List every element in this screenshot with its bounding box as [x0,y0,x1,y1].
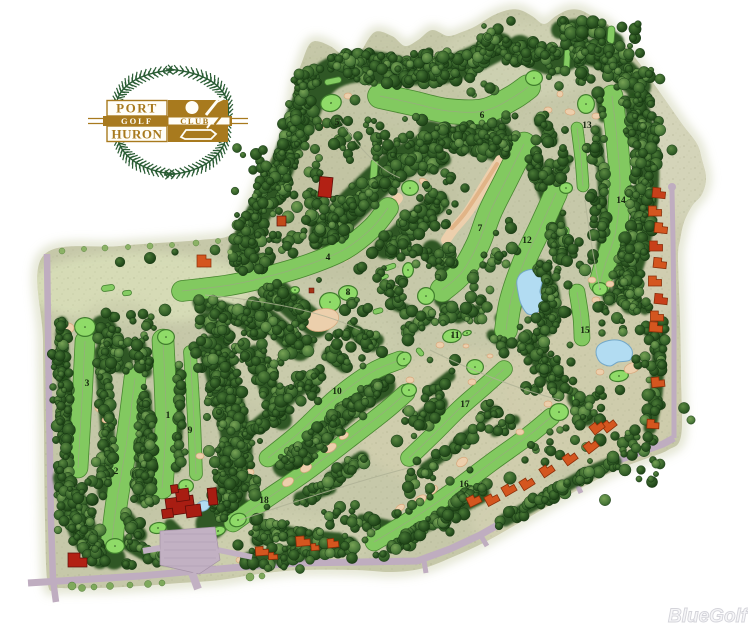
svg-text:6: 6 [480,111,485,121]
svg-text:5: 5 [335,118,340,128]
svg-text:2: 2 [114,467,119,477]
svg-text:12: 12 [522,236,532,246]
svg-text:14: 14 [616,196,626,206]
svg-text:11: 11 [451,331,460,341]
svg-text:15: 15 [580,326,590,336]
svg-text:CLUB: CLUB [180,116,210,126]
svg-text:17: 17 [460,400,470,410]
svg-text:4: 4 [326,253,331,263]
svg-text:BlueGolf: BlueGolf [668,606,748,627]
svg-text:1: 1 [166,411,171,421]
svg-text:8: 8 [346,288,351,298]
svg-text:10: 10 [332,387,342,397]
svg-text:PORT: PORT [116,101,158,116]
svg-text:7: 7 [478,224,483,234]
svg-text:16: 16 [459,480,469,490]
svg-text:9: 9 [188,426,193,436]
svg-text:18: 18 [259,496,269,506]
svg-text:13: 13 [582,121,592,131]
svg-text:HURON: HURON [112,127,163,142]
svg-text:GOLF: GOLF [121,116,153,126]
svg-text:3: 3 [85,379,90,389]
